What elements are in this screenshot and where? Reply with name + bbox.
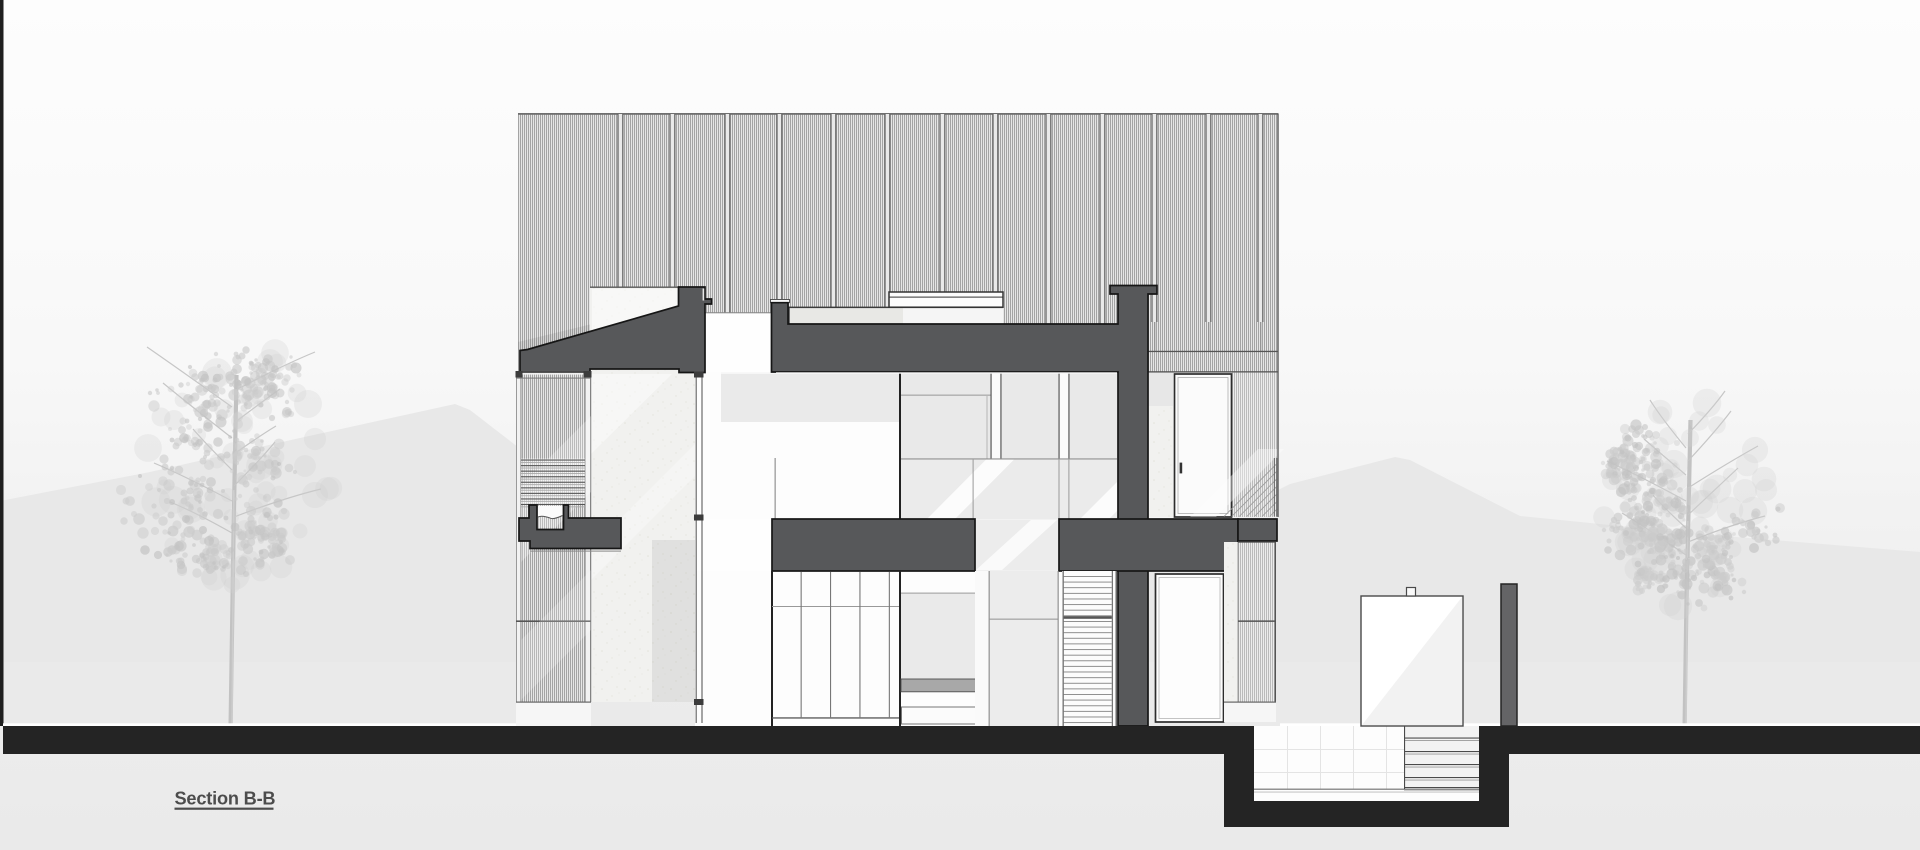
svg-text:Section B-B: Section B-B <box>175 789 276 809</box>
